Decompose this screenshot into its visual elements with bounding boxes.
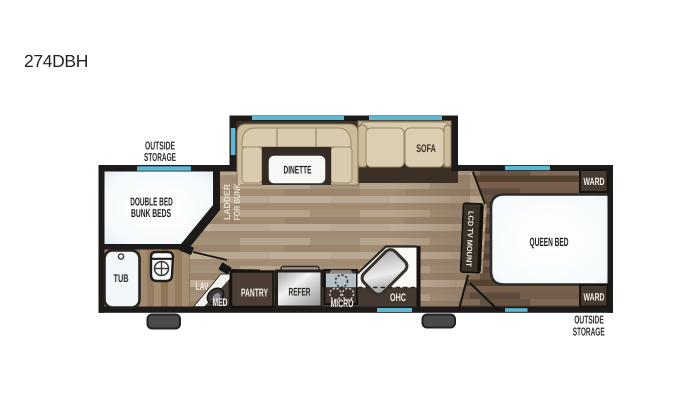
svg-text:STORAGE: STORAGE [144,152,176,164]
svg-text:MICRO: MICRO [331,298,354,310]
svg-text:BUNK BEDS: BUNK BEDS [131,208,171,220]
svg-text:TUB: TUB [114,273,129,285]
svg-text:OUTSIDE: OUTSIDE [145,140,175,152]
svg-text:LADDER: LADDER [222,184,232,220]
svg-text:LAV: LAV [196,281,209,293]
svg-text:274DBH: 274DBH [24,51,89,71]
svg-text:PANTRY: PANTRY [241,287,268,299]
svg-text:WARD: WARD [584,176,605,188]
svg-text:STORAGE: STORAGE [573,326,605,338]
svg-text:FOR BUNK: FOR BUNK [232,183,242,220]
svg-text:DOUBLE BED: DOUBLE BED [130,196,173,208]
svg-text:REFER: REFER [289,287,311,299]
svg-text:MED: MED [213,297,228,309]
svg-text:OHC: OHC [390,292,406,304]
svg-text:OUTSIDE: OUTSIDE [574,314,604,326]
svg-text:DINETTE: DINETTE [284,165,312,177]
svg-text:WARD: WARD [584,292,605,304]
svg-text:SOFA: SOFA [416,143,436,155]
svg-text:QUEEN BED: QUEEN BED [530,235,569,249]
